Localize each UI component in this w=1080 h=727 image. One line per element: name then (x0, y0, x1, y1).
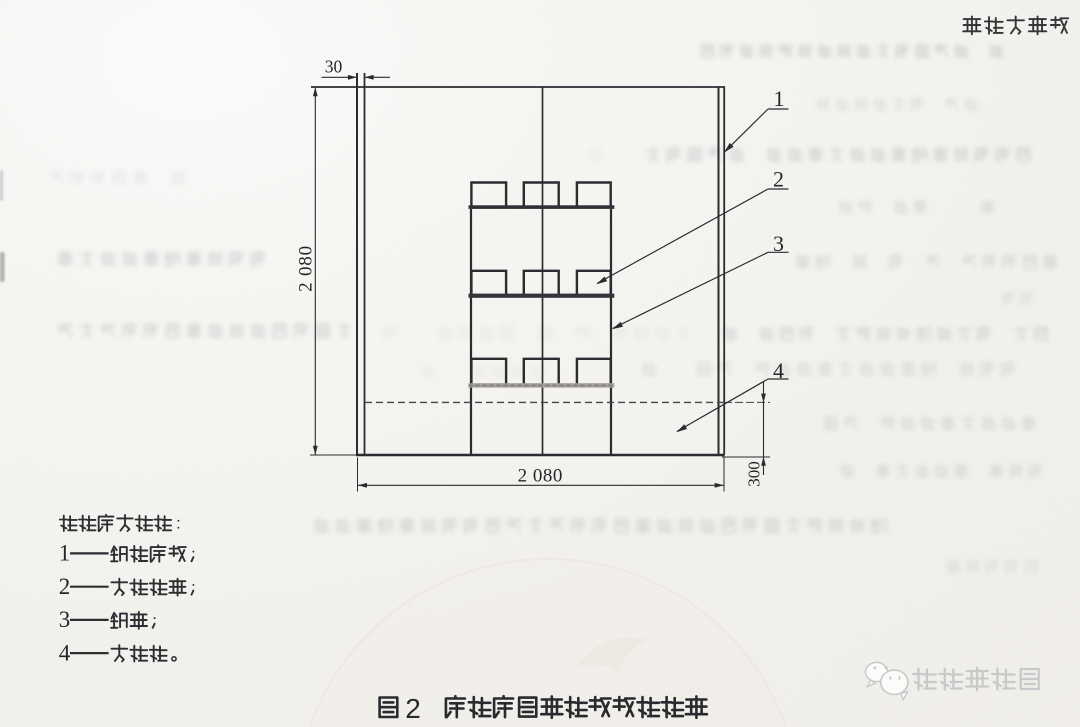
svg-text:1: 1 (774, 86, 785, 111)
svg-text:3: 3 (59, 607, 71, 632)
svg-text:1: 1 (59, 541, 71, 566)
svg-text:4: 4 (59, 640, 71, 665)
svg-text:2 080: 2 080 (296, 245, 317, 292)
svg-text:2: 2 (773, 167, 784, 192)
svg-text:300: 300 (745, 461, 764, 487)
svg-text:2 080: 2 080 (518, 465, 563, 486)
svg-text:3: 3 (773, 231, 784, 256)
svg-text:2: 2 (405, 693, 421, 724)
svg-text:2: 2 (59, 574, 71, 599)
svg-text:30: 30 (325, 56, 343, 76)
svg-text:4: 4 (773, 358, 784, 383)
